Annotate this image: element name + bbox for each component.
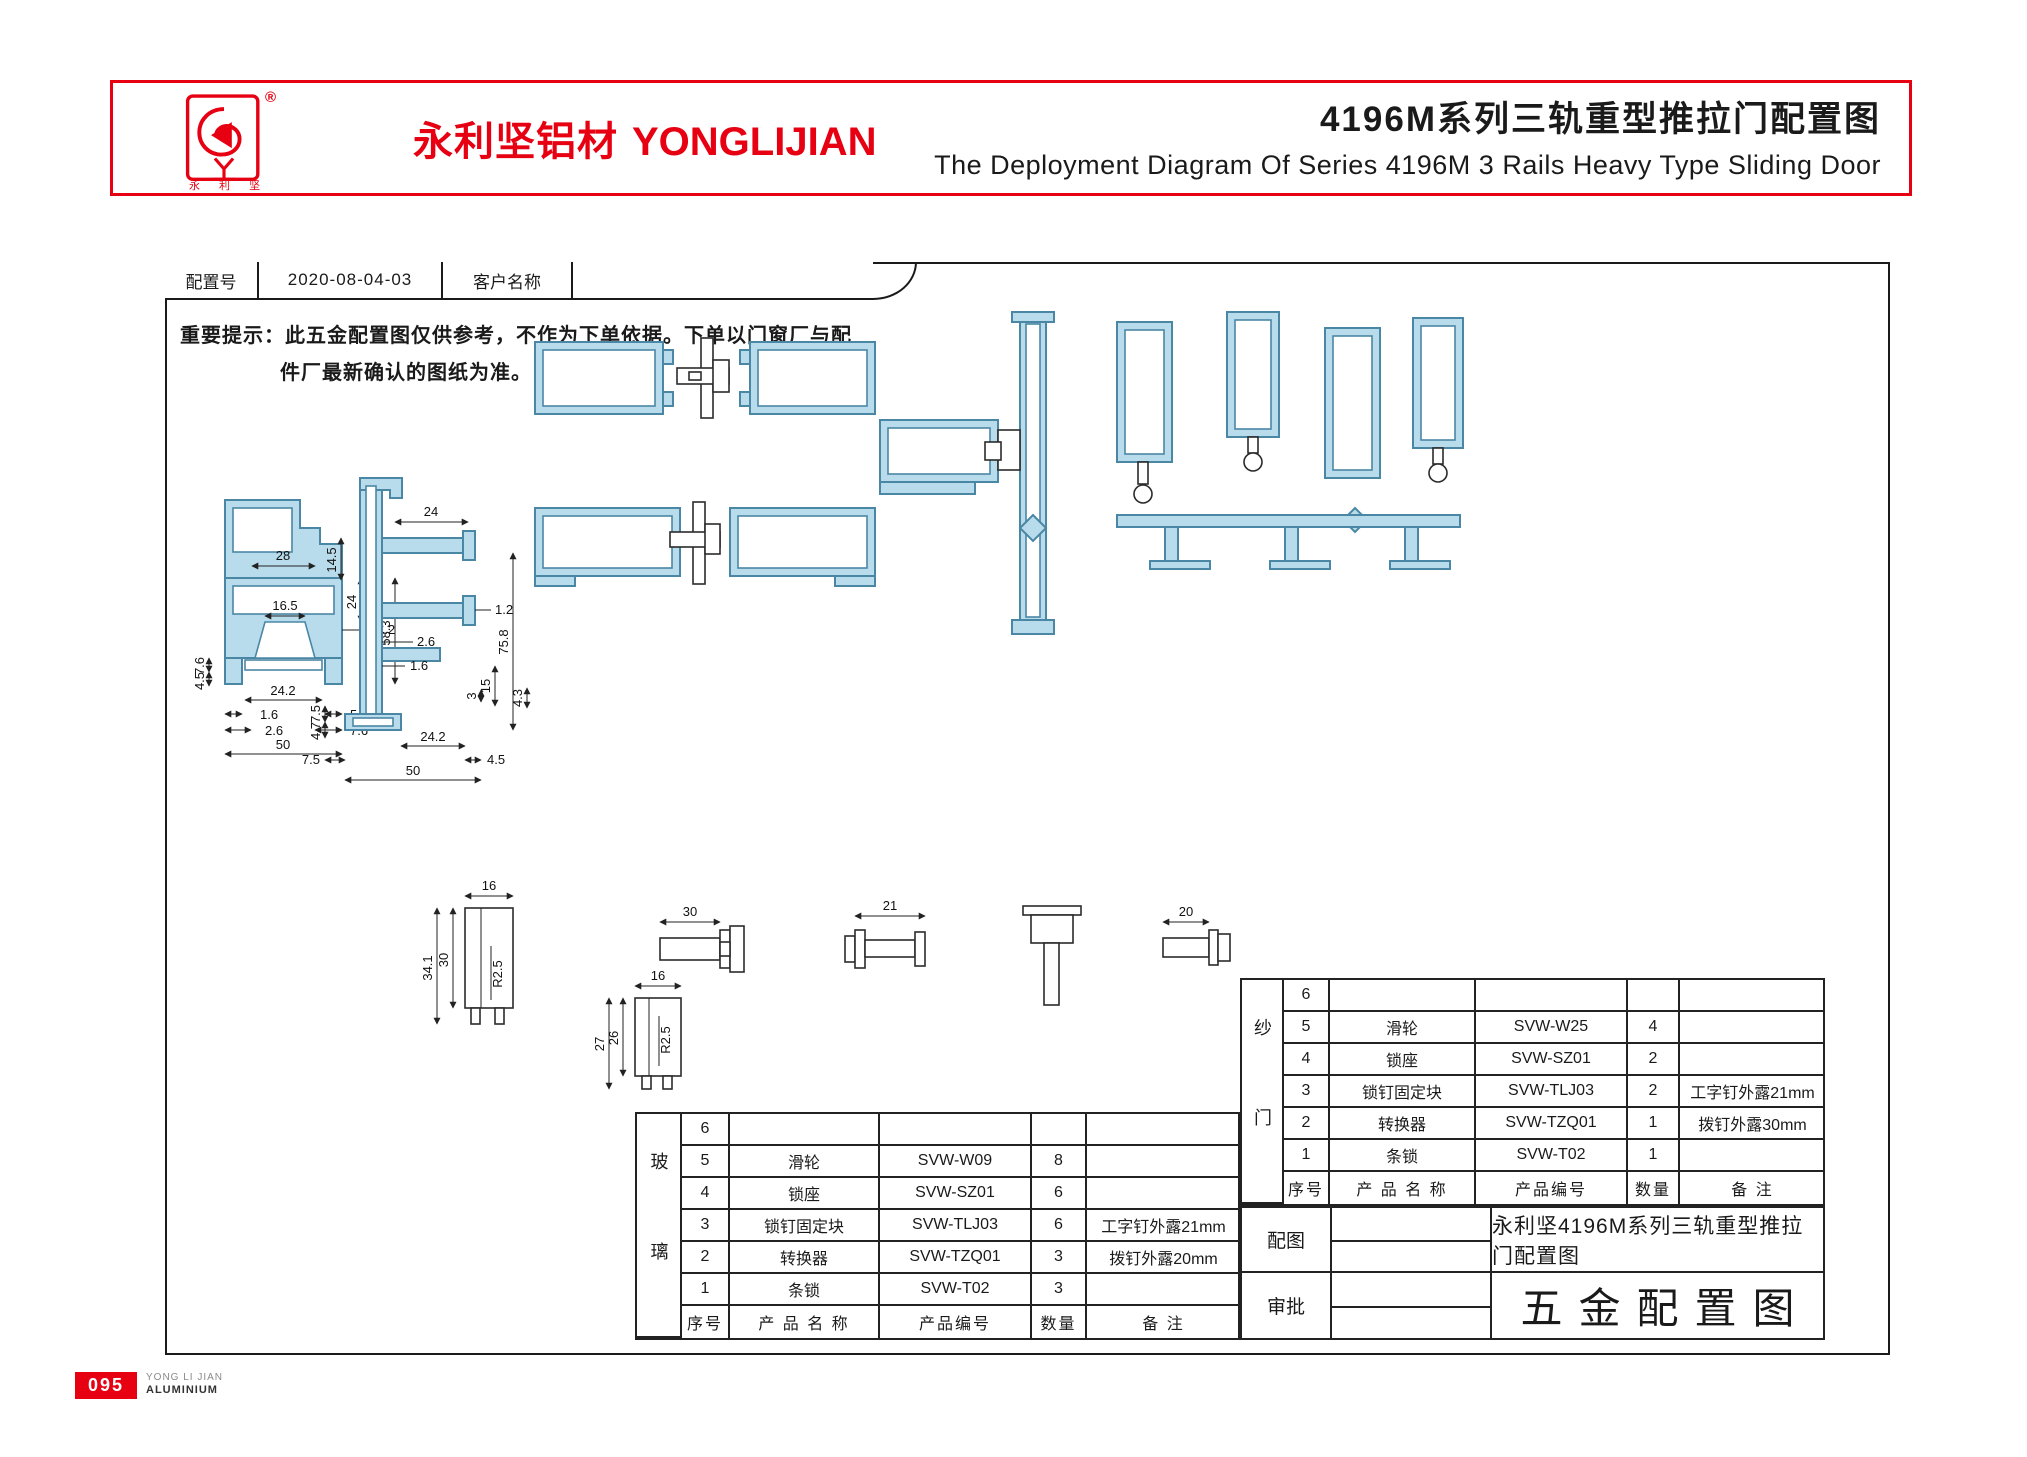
row-no: 5 <box>682 1146 730 1178</box>
meeting-stile-section-middle <box>535 502 875 586</box>
page-number-badge: 095 <box>75 1372 137 1399</box>
row-qty: 3 <box>1032 1242 1087 1274</box>
dim-label: R2.5 <box>490 960 505 987</box>
row-name: 滑轮 <box>1330 1012 1476 1044</box>
col-header-qty: 数量 <box>1032 1306 1087 1338</box>
row-name: 滑轮 <box>730 1146 880 1178</box>
dim-label: 7.5 <box>308 705 323 723</box>
row-name: 锁座 <box>1330 1044 1476 1076</box>
col-header-code: 产品编号 <box>1476 1172 1628 1204</box>
row-qty: 2 <box>1628 1076 1680 1108</box>
footer-brand: YONG LI JIAN ALUMINIUM <box>146 1371 223 1397</box>
shenpi-signature-cell <box>1332 1273 1492 1338</box>
row-qty: 2 <box>1628 1044 1680 1076</box>
row-name: 锁钉固定块 <box>730 1210 880 1242</box>
dim-label: 4.5 <box>487 752 505 767</box>
col-header-no: 序号 <box>1284 1172 1330 1204</box>
row-qty: 8 <box>1032 1146 1087 1178</box>
row-code: SVW-W09 <box>880 1146 1032 1178</box>
row-code: SVW-TLJ03 <box>1476 1076 1628 1108</box>
dim-label: 7.5 <box>302 752 320 767</box>
row-code <box>1476 980 1628 1012</box>
row-note <box>1680 980 1825 1012</box>
dim-label: 24.2 <box>270 683 295 698</box>
row-note <box>1680 1012 1825 1044</box>
doc-title-en: The Deployment Diagram Of Series 4196M 3… <box>934 150 1881 181</box>
frame-mullion-section <box>880 312 1054 634</box>
peitu-title: 永利坚4196M系列三轨重型推拉门配置图 <box>1492 1208 1823 1273</box>
dim-label: 2.6 <box>265 723 283 738</box>
dim-label: 75.8 <box>496 629 511 654</box>
col-header-name: 产 品 名 称 <box>1330 1172 1476 1204</box>
dim-label: 24.2 <box>420 729 445 744</box>
dim-label: 26 <box>606 1031 621 1045</box>
config-no-value: 2020-08-04-03 <box>259 262 443 300</box>
glass-table-category: 玻璃 <box>637 1114 682 1338</box>
page: { "header": { "reg_mark": "®", "logo_sub… <box>0 0 2027 1457</box>
brand-name-en: YONGLIJIAN <box>632 120 876 164</box>
dim-label: 4.7 <box>308 722 323 740</box>
col-header-name: 产 品 名 称 <box>730 1306 880 1338</box>
peitu-label: 配图 <box>1242 1208 1332 1273</box>
row-note <box>1087 1114 1240 1146</box>
header-banner: ® 永 利 坚 永利坚铝材YONGLIJIAN 4196M系列三轨重型推拉门配置… <box>110 80 1912 196</box>
row-no: 1 <box>682 1274 730 1306</box>
row-note: 工字钉外露21mm <box>1680 1076 1825 1108</box>
meeting-stile-section-top <box>535 338 875 418</box>
screen-table-category: 纱门 <box>1242 980 1284 1204</box>
logo-subtext: 永 利 坚 <box>189 177 268 193</box>
dim-label: 24 <box>344 595 359 609</box>
row-code: SVW-TZQ01 <box>1476 1108 1628 1140</box>
row-name: 锁钉固定块 <box>1330 1076 1476 1108</box>
row-no: 6 <box>1284 980 1330 1012</box>
dim-label: 2.6 <box>417 634 435 649</box>
dim-label: 28 <box>276 548 290 563</box>
col-header-note: 备 注 <box>1087 1306 1240 1338</box>
row-no: 4 <box>682 1178 730 1210</box>
row-name: 条锁 <box>1330 1140 1476 1172</box>
row-qty: 1 <box>1628 1140 1680 1172</box>
brand-name-cn: 永利坚铝材 <box>413 120 618 164</box>
yonglijian-logo-icon <box>185 93 263 185</box>
row-qty: 1 <box>1628 1108 1680 1140</box>
row-note <box>1087 1146 1240 1178</box>
dim-label: 16 <box>651 968 665 983</box>
document-titles: 4196M系列三轨重型推拉门配置图 The Deployment Diagram… <box>934 91 1881 181</box>
dim-label: 14.5 <box>324 547 339 572</box>
row-name: 转换器 <box>730 1242 880 1274</box>
dim-label: 1.6 <box>410 658 428 673</box>
dim-label: 1.2 <box>495 602 513 617</box>
dim-label: 34.1 <box>420 955 435 980</box>
row-note <box>1087 1274 1240 1306</box>
dim-label: 30 <box>436 953 451 967</box>
row-no: 1 <box>1284 1140 1330 1172</box>
row-code: SVW-TZQ01 <box>880 1242 1032 1274</box>
doc-title-cn: 4196M系列三轨重型推拉门配置图 <box>934 91 1881 142</box>
dim-label: 24 <box>424 504 438 519</box>
col-header-note: 备 注 <box>1680 1172 1825 1204</box>
row-qty: 3 <box>1032 1274 1087 1306</box>
row-no: 5 <box>1284 1012 1330 1044</box>
customer-label: 客户名称 <box>443 262 573 300</box>
row-name: 条锁 <box>730 1274 880 1306</box>
row-no: 2 <box>682 1242 730 1274</box>
frame-sections-right <box>1117 312 1463 569</box>
row-note: 拨钉外露30mm <box>1680 1108 1825 1140</box>
row-qty: 6 <box>1032 1210 1087 1242</box>
row-no: 2 <box>1284 1108 1330 1140</box>
row-note: 拨钉外露20mm <box>1087 1242 1240 1274</box>
row-note <box>1087 1178 1240 1210</box>
dim-label: 15 <box>478 679 493 693</box>
hardware-parts: 16 34.1 30 R2.5 30 21 20 16 27 26 R2.5 <box>420 878 1230 1089</box>
row-no: 4 <box>1284 1044 1330 1076</box>
config-no-label: 配置号 <box>165 262 259 300</box>
row-code: SVW-W25 <box>1476 1012 1628 1044</box>
row-qty: 4 <box>1628 1012 1680 1044</box>
row-code <box>880 1114 1032 1146</box>
brand-name: 永利坚铝材YONGLIJIAN <box>413 109 876 167</box>
dim-label: 50 <box>406 763 420 778</box>
registered-mark: ® <box>265 89 276 106</box>
row-note <box>1680 1044 1825 1076</box>
dim-label: 20 <box>1179 904 1193 919</box>
glass-door-hardware-table: 玻璃 6 5滑轮SVW-W098 4锁座SVW-SZ016 3锁钉固定块SVW-… <box>635 1112 1240 1340</box>
brand-logo: ® 永 利 坚 <box>185 93 405 189</box>
row-name <box>730 1114 880 1146</box>
row-code: SVW-SZ01 <box>880 1178 1032 1210</box>
footer-brand-line1: YONG LI JIAN <box>146 1371 223 1384</box>
row-code: SVW-T02 <box>1476 1140 1628 1172</box>
row-name: 锁座 <box>730 1178 880 1210</box>
row-name <box>1330 980 1476 1012</box>
row-name: 转换器 <box>1330 1108 1476 1140</box>
dim-label: 4.5 <box>192 672 207 690</box>
config-bar: 配置号 2020-08-04-03 客户名称 <box>165 262 917 300</box>
dim-label: 16 <box>482 878 496 893</box>
dim-label: 30 <box>683 904 697 919</box>
screen-door-hardware-table: 纱门 6 5滑轮SVW-W254 4锁座SVW-SZ012 3锁钉固定块SVW-… <box>1240 978 1825 1206</box>
row-note <box>1680 1140 1825 1172</box>
dim-label: 21 <box>883 898 897 913</box>
dim-label: R2.5 <box>658 1026 673 1053</box>
col-header-qty: 数量 <box>1628 1172 1680 1204</box>
row-no: 3 <box>682 1210 730 1242</box>
row-qty: 6 <box>1032 1178 1087 1210</box>
footer-brand-line2: ALUMINIUM <box>146 1384 223 1397</box>
config-bar-curved-end <box>873 262 917 300</box>
dim-label: 50 <box>276 737 290 752</box>
hardware-config-title: 五金配置图 <box>1492 1273 1823 1338</box>
dim-label: 3 <box>464 692 479 699</box>
col-header-code: 产品编号 <box>880 1306 1032 1338</box>
row-code: SVW-SZ01 <box>1476 1044 1628 1076</box>
dim-label: 4.3 <box>510 689 525 707</box>
row-qty <box>1032 1114 1087 1146</box>
customer-value <box>573 262 873 300</box>
title-block: 配图 永利坚4196M系列三轨重型推拉门配置图 审批 五金配置图 <box>1240 1206 1825 1340</box>
dim-label: 27 <box>592 1037 607 1051</box>
row-code: SVW-TLJ03 <box>880 1210 1032 1242</box>
row-no: 6 <box>682 1114 730 1146</box>
shenpi-label: 审批 <box>1242 1273 1332 1338</box>
row-no: 3 <box>1284 1076 1330 1108</box>
row-qty <box>1628 980 1680 1012</box>
row-code: SVW-T02 <box>880 1274 1032 1306</box>
peitu-signature-cell <box>1332 1208 1492 1273</box>
dim-label: 1.6 <box>260 707 278 722</box>
col-header-no: 序号 <box>682 1306 730 1338</box>
dim-label: 16.5 <box>272 598 297 613</box>
row-note: 工字钉外露21mm <box>1087 1210 1240 1242</box>
